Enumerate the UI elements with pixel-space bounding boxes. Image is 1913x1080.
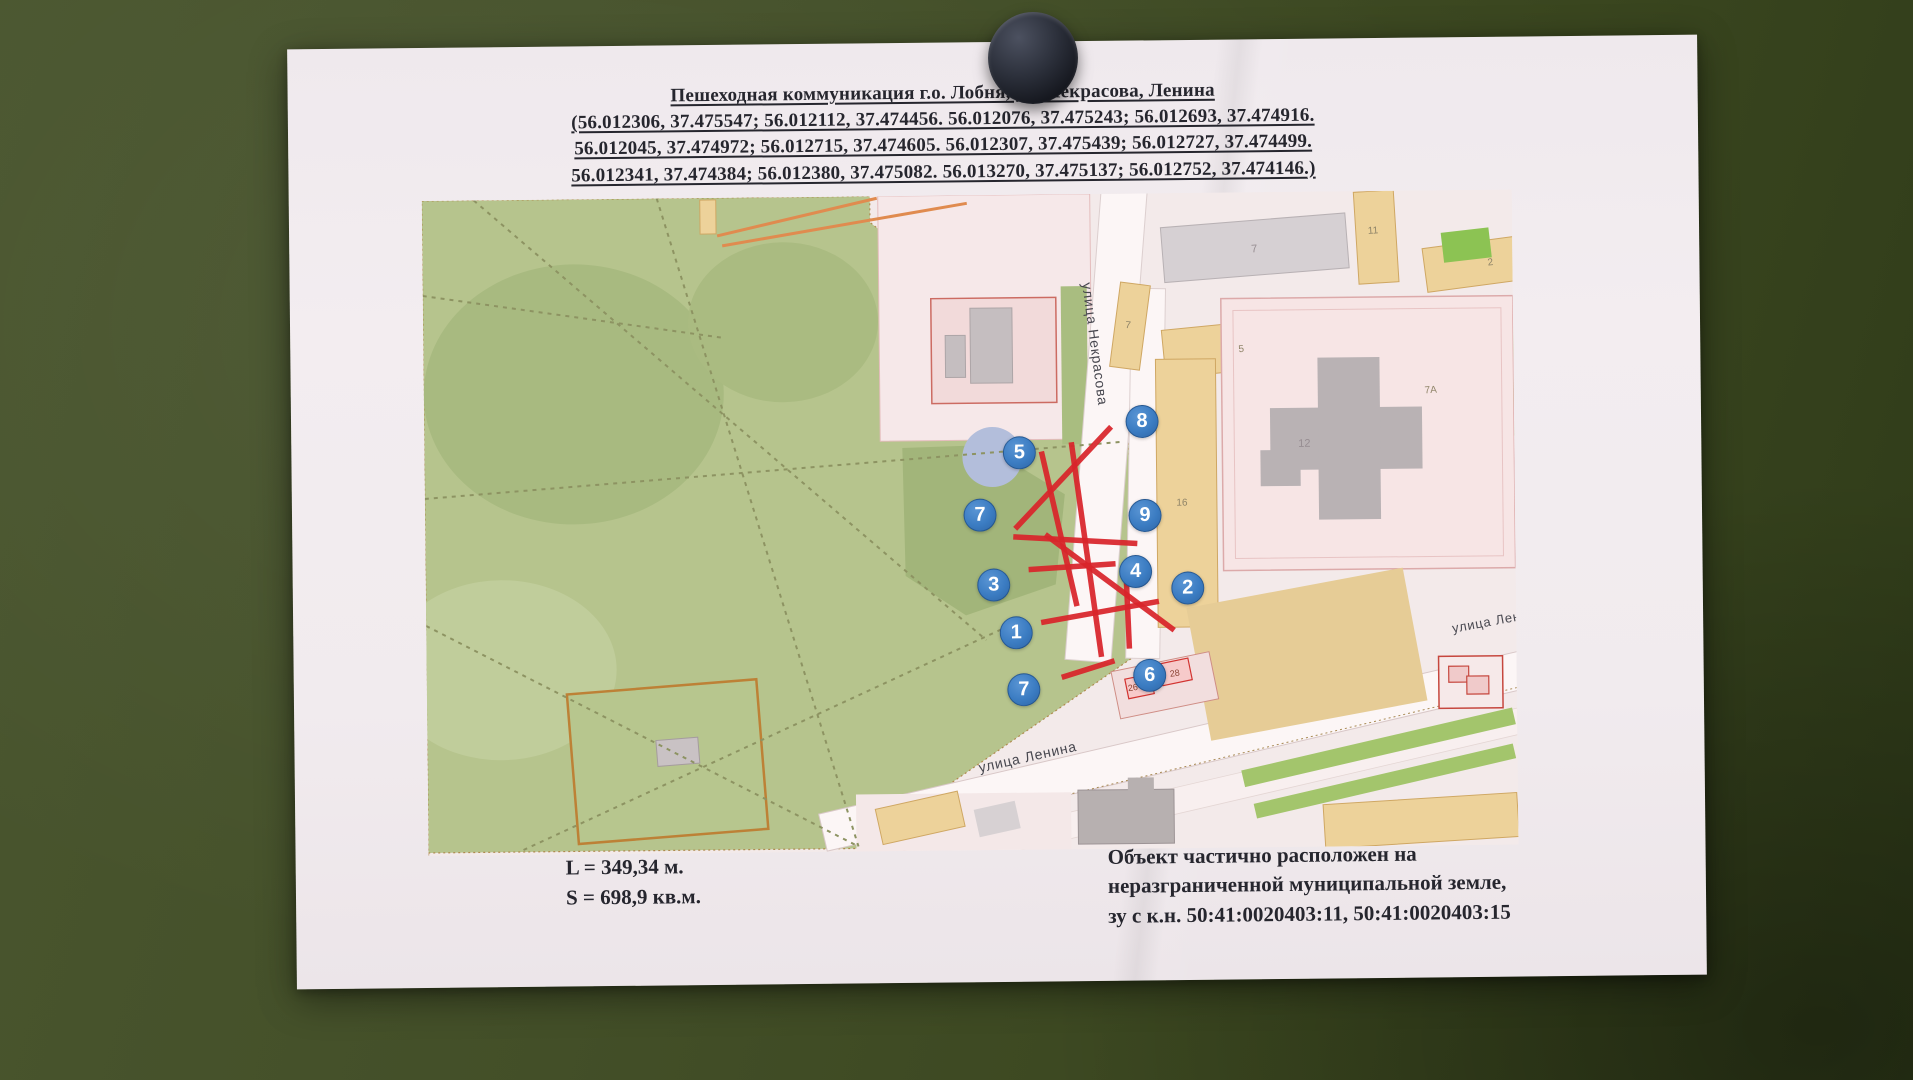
site-map: улица Некрасоваулица Ленинаулица Ленина7… xyxy=(422,190,1519,856)
gray-building-inner xyxy=(970,308,1013,383)
document-title-block: Пешеходная коммуникация г.о. Лобня, ул. … xyxy=(398,75,1489,191)
red-annotated-inner-2 xyxy=(1467,676,1489,694)
map-marker-1: 1 xyxy=(1000,616,1033,649)
fenced-enclosure xyxy=(567,679,768,844)
map-marker-6: 6 xyxy=(1133,659,1166,692)
map-marker-5: 5 xyxy=(1003,436,1036,469)
building-label-3: 7 xyxy=(1251,243,1258,255)
area-value: S = 698,9 кв.м. xyxy=(566,882,701,914)
land-note-block: Объект частично расположен на неразграни… xyxy=(1107,837,1708,931)
map-marker-7: 7 xyxy=(1007,673,1040,706)
church-building xyxy=(1078,789,1175,844)
green-board: { "document": { "title": "Пешеходная ком… xyxy=(0,0,1913,1080)
school-building-arm xyxy=(1260,450,1300,486)
map-marker-2: 2 xyxy=(1171,571,1204,604)
map-marker-3: 3 xyxy=(977,568,1010,601)
building-label-9: 12 xyxy=(1298,438,1310,450)
building-label-10: 16 xyxy=(1176,498,1187,509)
length-value: L = 349,34 м. xyxy=(566,851,701,883)
green-patch-1 xyxy=(1441,227,1492,262)
building-11 xyxy=(1353,190,1399,284)
school-building-wing-v xyxy=(1317,357,1381,520)
note-line-3: зу с к.н. 50:41:0020403:11, 50:41:002040… xyxy=(1108,895,1708,931)
small-building-top xyxy=(700,200,716,234)
building-label-8: 7А xyxy=(1424,385,1437,397)
red-annotated-inner-1 xyxy=(1449,666,1469,682)
gray-building-annex xyxy=(945,335,965,377)
map-marker-7: 7 xyxy=(963,499,996,532)
building-label-4: 7 xyxy=(1125,320,1132,331)
map-marker-4: 4 xyxy=(1119,555,1152,588)
paper-sheet: Пешеходная коммуникация г.о. Лобня, ул. … xyxy=(287,35,1707,990)
building-label-5: 11 xyxy=(1368,225,1379,237)
building-label-6: 2 xyxy=(1487,257,1494,269)
measurements-block: L = 349,34 м. S = 698,9 кв.м. xyxy=(566,851,702,913)
church-building-tower xyxy=(1128,777,1154,803)
building-label-7: 5 xyxy=(1238,344,1245,355)
magnet-pin xyxy=(988,12,1078,104)
map-marker-8: 8 xyxy=(1125,405,1158,438)
building-label-12: 28 xyxy=(1169,667,1180,678)
map-marker-9: 9 xyxy=(1128,499,1161,532)
